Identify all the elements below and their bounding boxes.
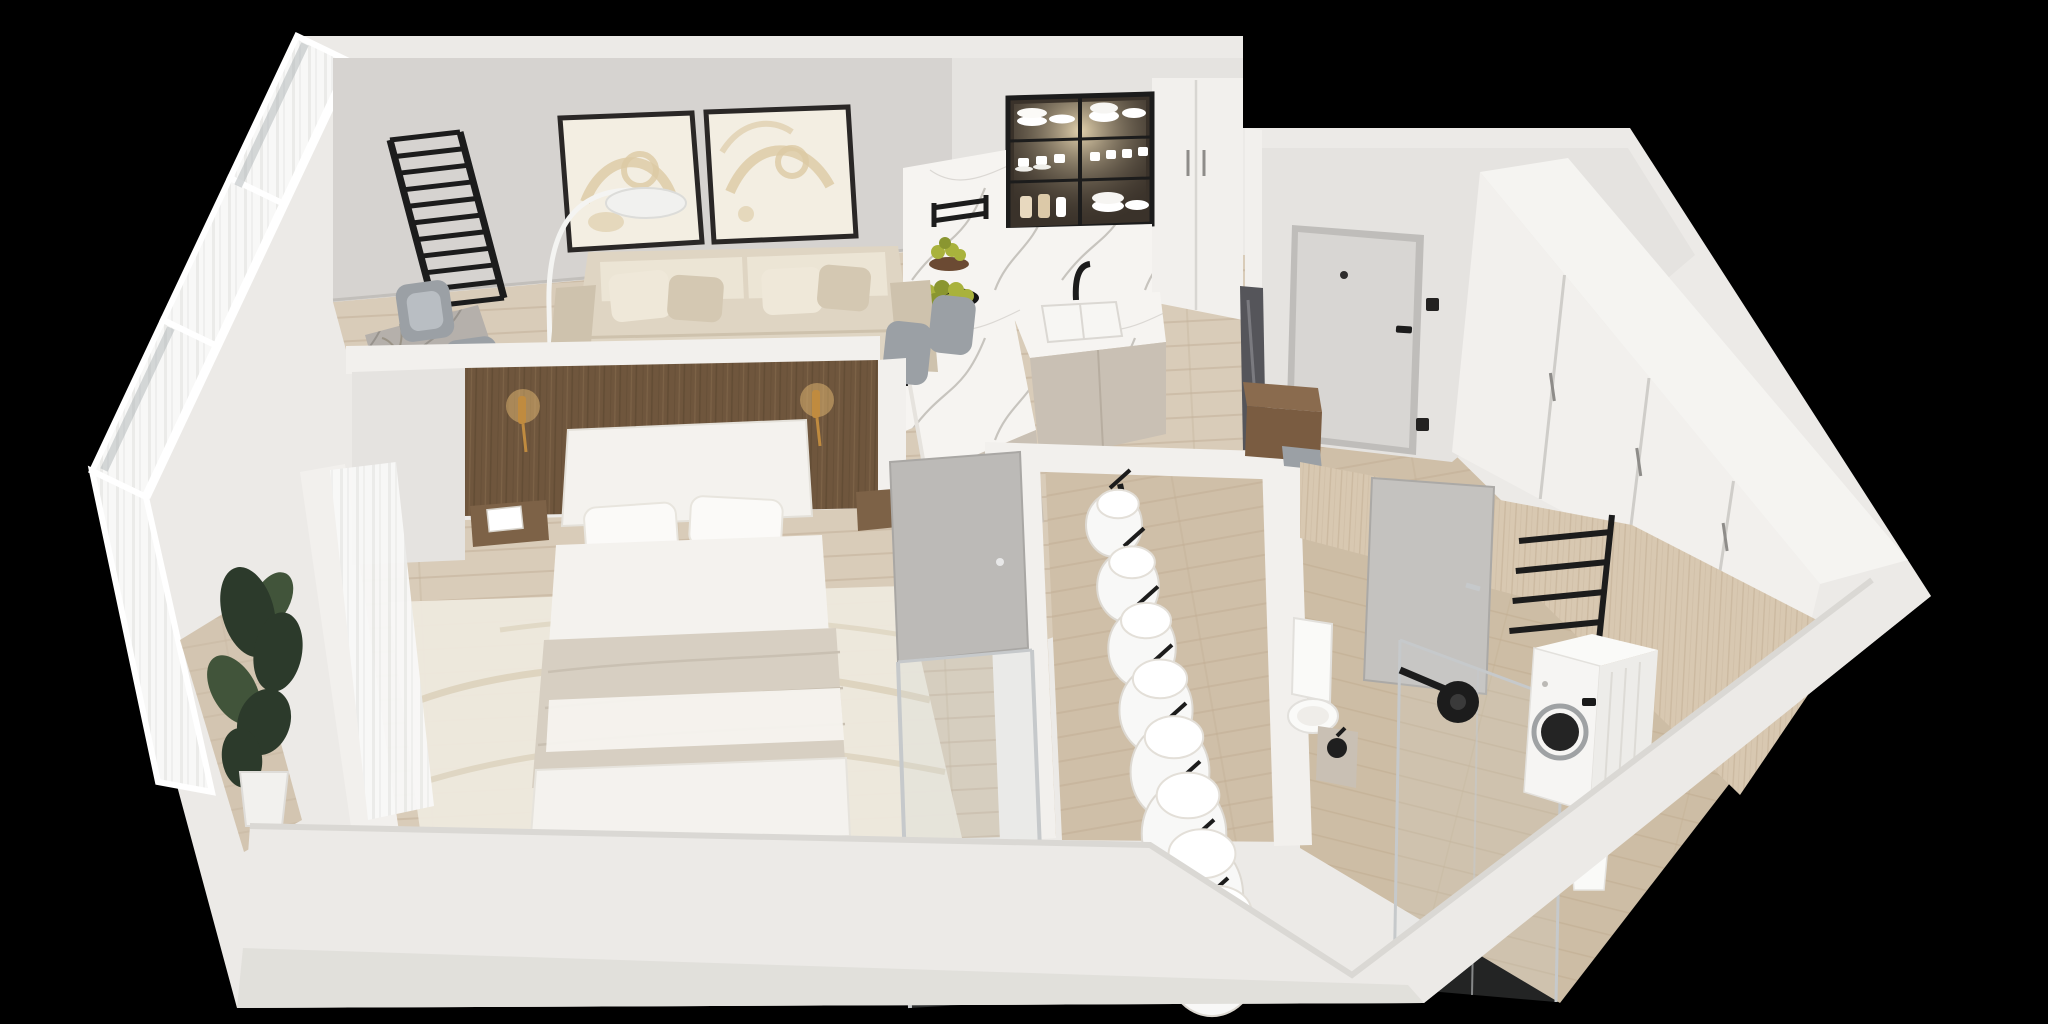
bar-stool [927,294,977,356]
magazine [487,506,523,531]
throw-pillow [666,274,724,323]
double-bed [530,420,850,848]
garment-shoulders [1097,490,1138,518]
garment-shoulders [1133,659,1187,698]
bedroom [300,336,962,872]
peephole [1340,271,1348,279]
cup [1036,156,1047,165]
pear [954,249,966,261]
bowl [1122,108,1146,118]
cup [1054,154,1065,163]
washer-door-glass [1541,713,1579,751]
saucer [1015,166,1033,171]
bowl-stack [1125,200,1149,210]
garment-shoulders [1121,603,1171,638]
render-stage [0,0,2048,1024]
vanity [1316,726,1358,788]
toilet-tank [1292,618,1332,702]
throw-pillow [608,269,673,323]
cup [1138,147,1148,156]
glass-front-upper-cabinet [1008,94,1152,230]
lamp-shade [606,188,686,218]
cup [1106,150,1116,159]
sconce-body [518,396,526,424]
cup [1090,152,1100,161]
bowl-stack [1092,192,1124,204]
plate-stack [1049,115,1075,124]
jar [1020,196,1032,218]
garment-shoulders [1145,716,1203,758]
door-handle [1396,325,1412,333]
throw-pillow [761,266,823,315]
saucer [1033,164,1051,169]
plate-stack [1017,108,1047,118]
tall-cabinet-column [1152,78,1243,320]
toilet [1288,618,1338,733]
light-switch [1416,418,1429,431]
jar [1038,194,1050,218]
garment-shoulders [1109,546,1155,578]
cup [1018,158,1029,167]
door-handle [996,558,1004,566]
closet-door [890,452,1028,662]
black-basin [1327,738,1347,758]
light-switch [1426,298,1439,311]
armchair-cushion [406,290,445,332]
bowl [1090,103,1118,114]
shower-head-center [1450,694,1466,710]
garment-shoulders [1157,773,1220,819]
washer-display [1582,698,1596,706]
apartment-render [0,0,2048,1024]
art-blob [588,212,624,232]
washer-knob [1542,681,1548,687]
plant-pot [240,772,288,826]
sconce-body [812,390,820,418]
throw-pillow [816,264,872,312]
jar [1056,197,1066,217]
pear [939,237,951,249]
cup [1122,149,1132,158]
art-dot [738,206,754,222]
toilet-seat [1297,706,1329,726]
